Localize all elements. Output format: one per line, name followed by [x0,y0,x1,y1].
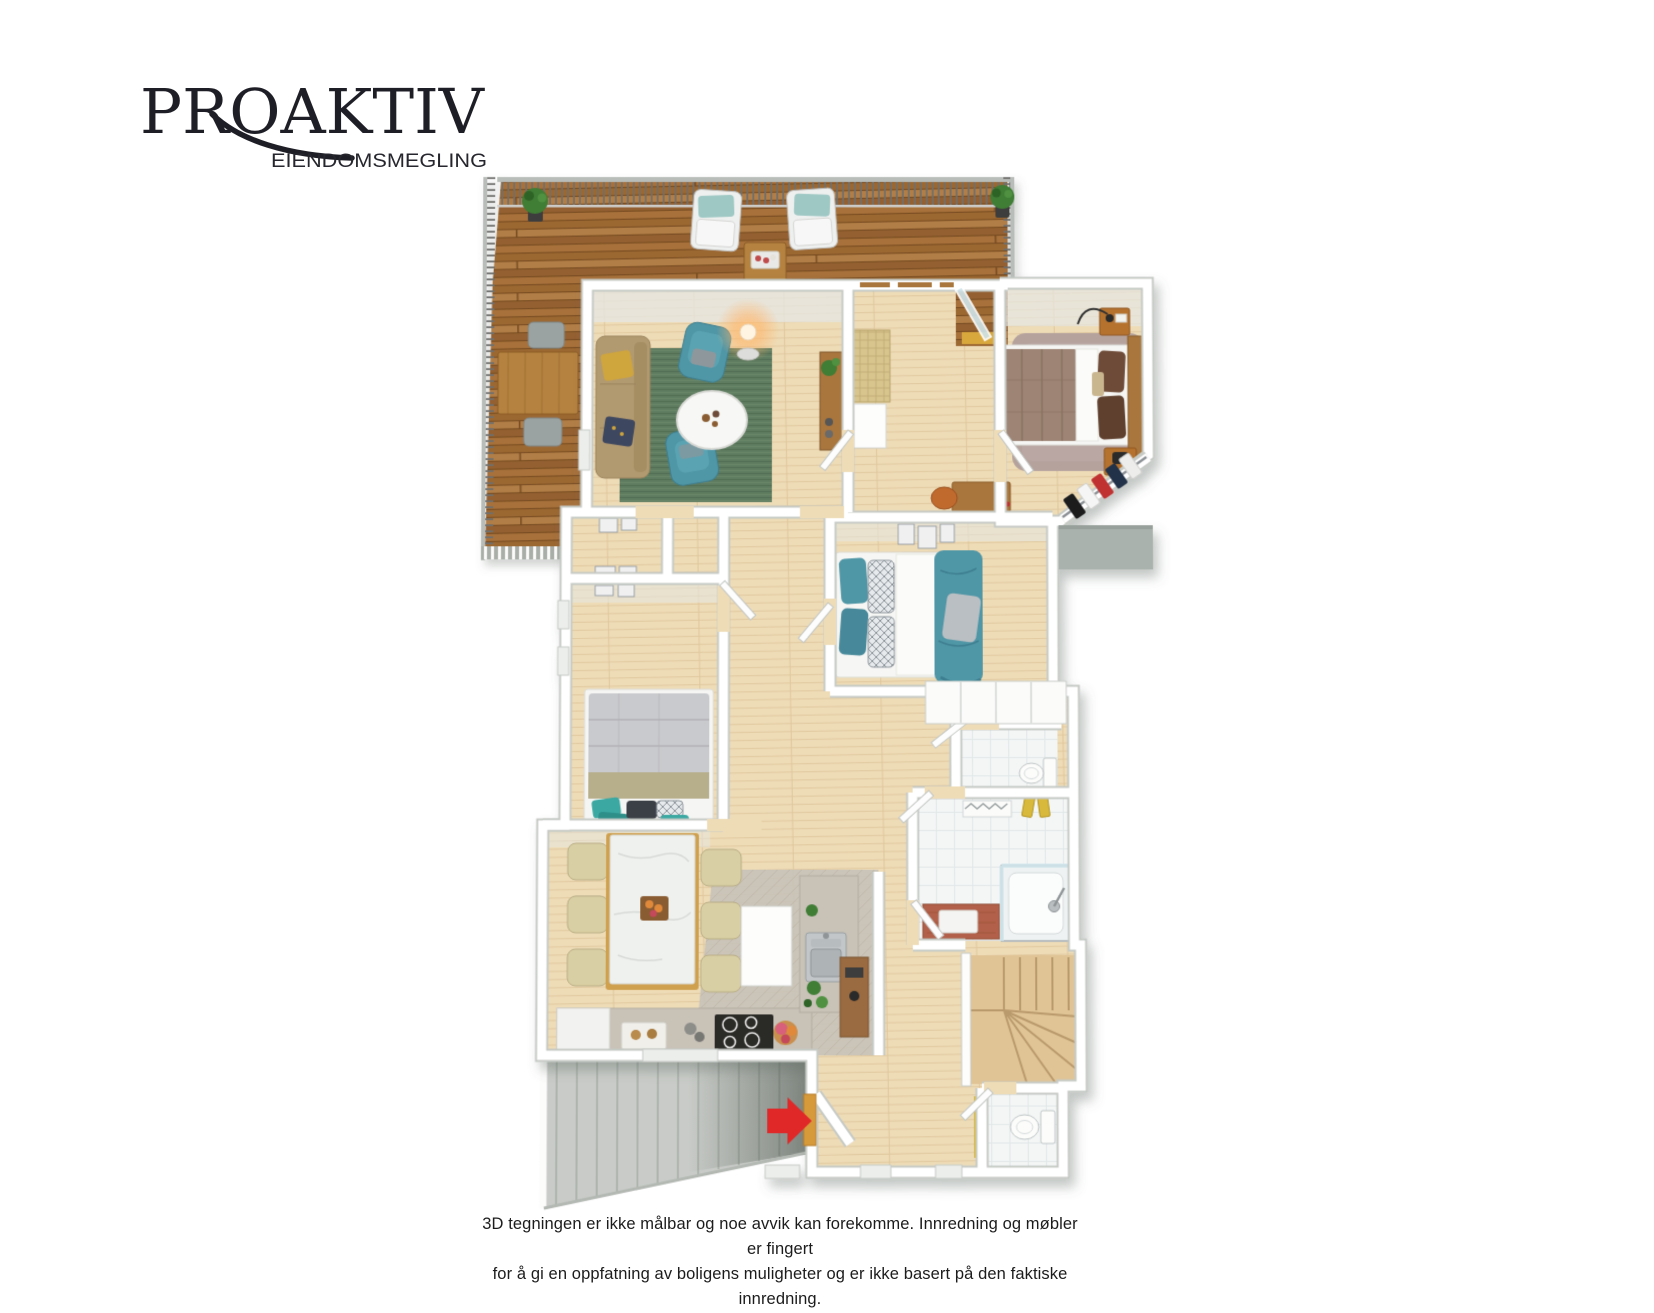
shower [1001,866,1070,941]
cutting-board [622,1023,667,1050]
outdoor-chair [524,418,562,446]
floor-lamp [716,298,780,362]
roof-patch [1059,525,1153,569]
entry-hall [852,330,890,448]
sideboard [840,957,868,1037]
single-bed [584,689,713,829]
disclaimer-line-2: for å gi en oppfatning av boligens mulig… [480,1262,1080,1312]
lounge-chair [786,188,838,251]
bathroom [917,794,1071,941]
interior-staircase [961,953,1079,1086]
disclaimer-line-1: 3D tegningen er ikke målbar og noe avvik… [480,1212,1080,1262]
sofa [596,336,651,478]
white-wardrobe [926,681,1067,723]
cooktop [715,1014,774,1052]
round-coffee-table [677,391,747,449]
bath-mat [963,801,1011,817]
hall-chest [852,404,886,448]
floor-plan [0,3,1654,1313]
wc-room [961,728,1058,791]
hall-cabinet [741,906,792,986]
house [541,282,1157,1178]
headboard [1128,336,1144,458]
outdoor-chair [528,322,564,348]
dining-table [606,833,699,990]
outdoor-dining-table [498,352,578,414]
desk-chair [931,487,957,509]
left-bedroom [584,689,713,829]
rattan-bench [852,330,890,402]
teal-bed [836,550,983,684]
double-bed [1002,336,1144,458]
vase [684,1023,696,1035]
page: PROAKTIV EIENDOMSMEGLING [0,0,1654,1299]
disclaimer: 3D tegningen er ikke målbar og noe avvik… [480,1212,1080,1312]
lounge-chair [690,189,742,252]
flower-vase [773,1021,797,1046]
vase [694,1032,704,1042]
outdoor-coffee-table [744,243,786,283]
